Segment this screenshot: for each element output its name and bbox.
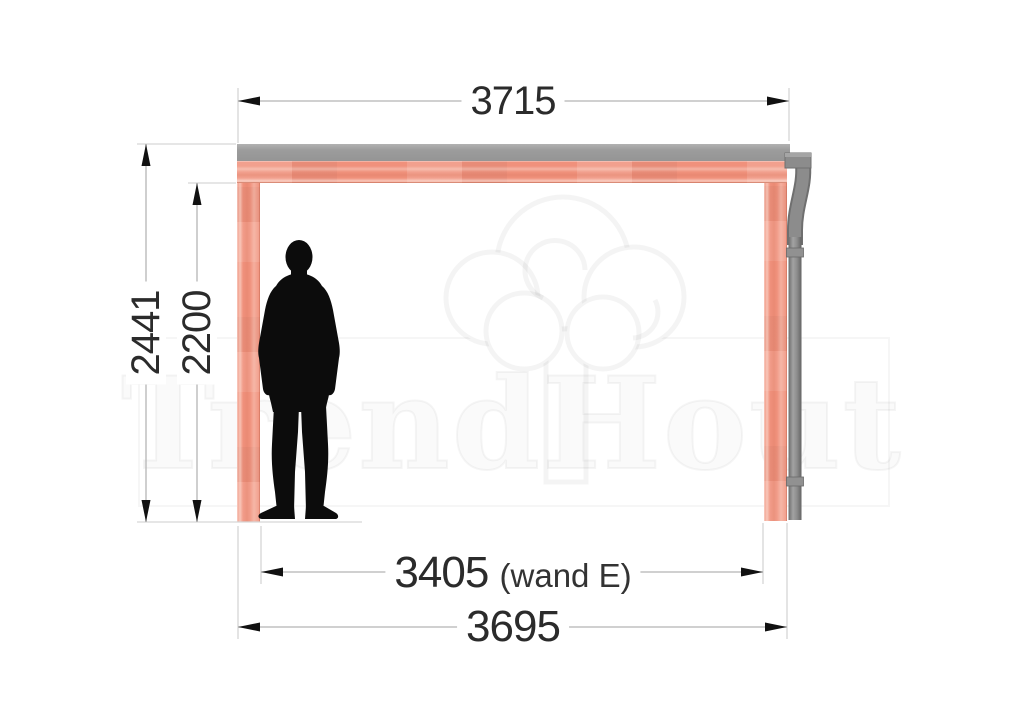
dimension-wall-width-suffix: (wand E) [500,557,632,594]
front-beam [237,161,787,183]
dimension-bottom-width: 3695 [457,605,569,649]
dimension-inner-height: 2200 [177,282,217,385]
drawing-canvas: TrendHout [0,0,1024,704]
dimension-top-width: 3715 [462,81,565,121]
dimension-wall-width-value: 3405 [394,548,488,597]
roof-panel [237,144,790,161]
gutter-downpipe-icon [780,145,820,525]
dimension-wall-width: 3405 (wand E) [385,551,640,595]
standing-man-silhouette-icon [246,240,350,521]
dimension-outer-height: 2441 [126,282,166,385]
